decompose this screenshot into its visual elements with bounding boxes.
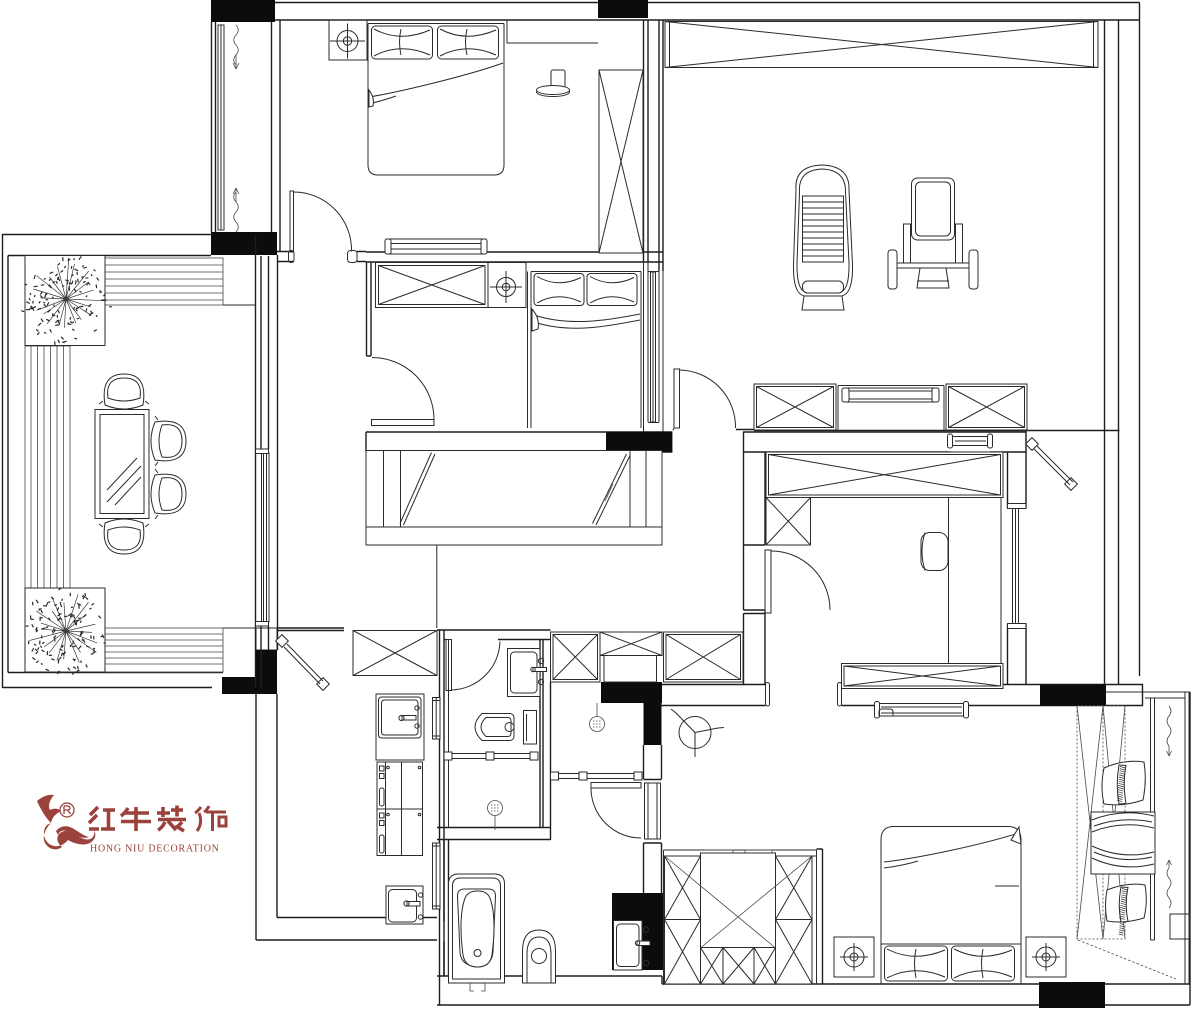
svg-text:HONG NIU DECORATION: HONG NIU DECORATION (90, 844, 220, 855)
